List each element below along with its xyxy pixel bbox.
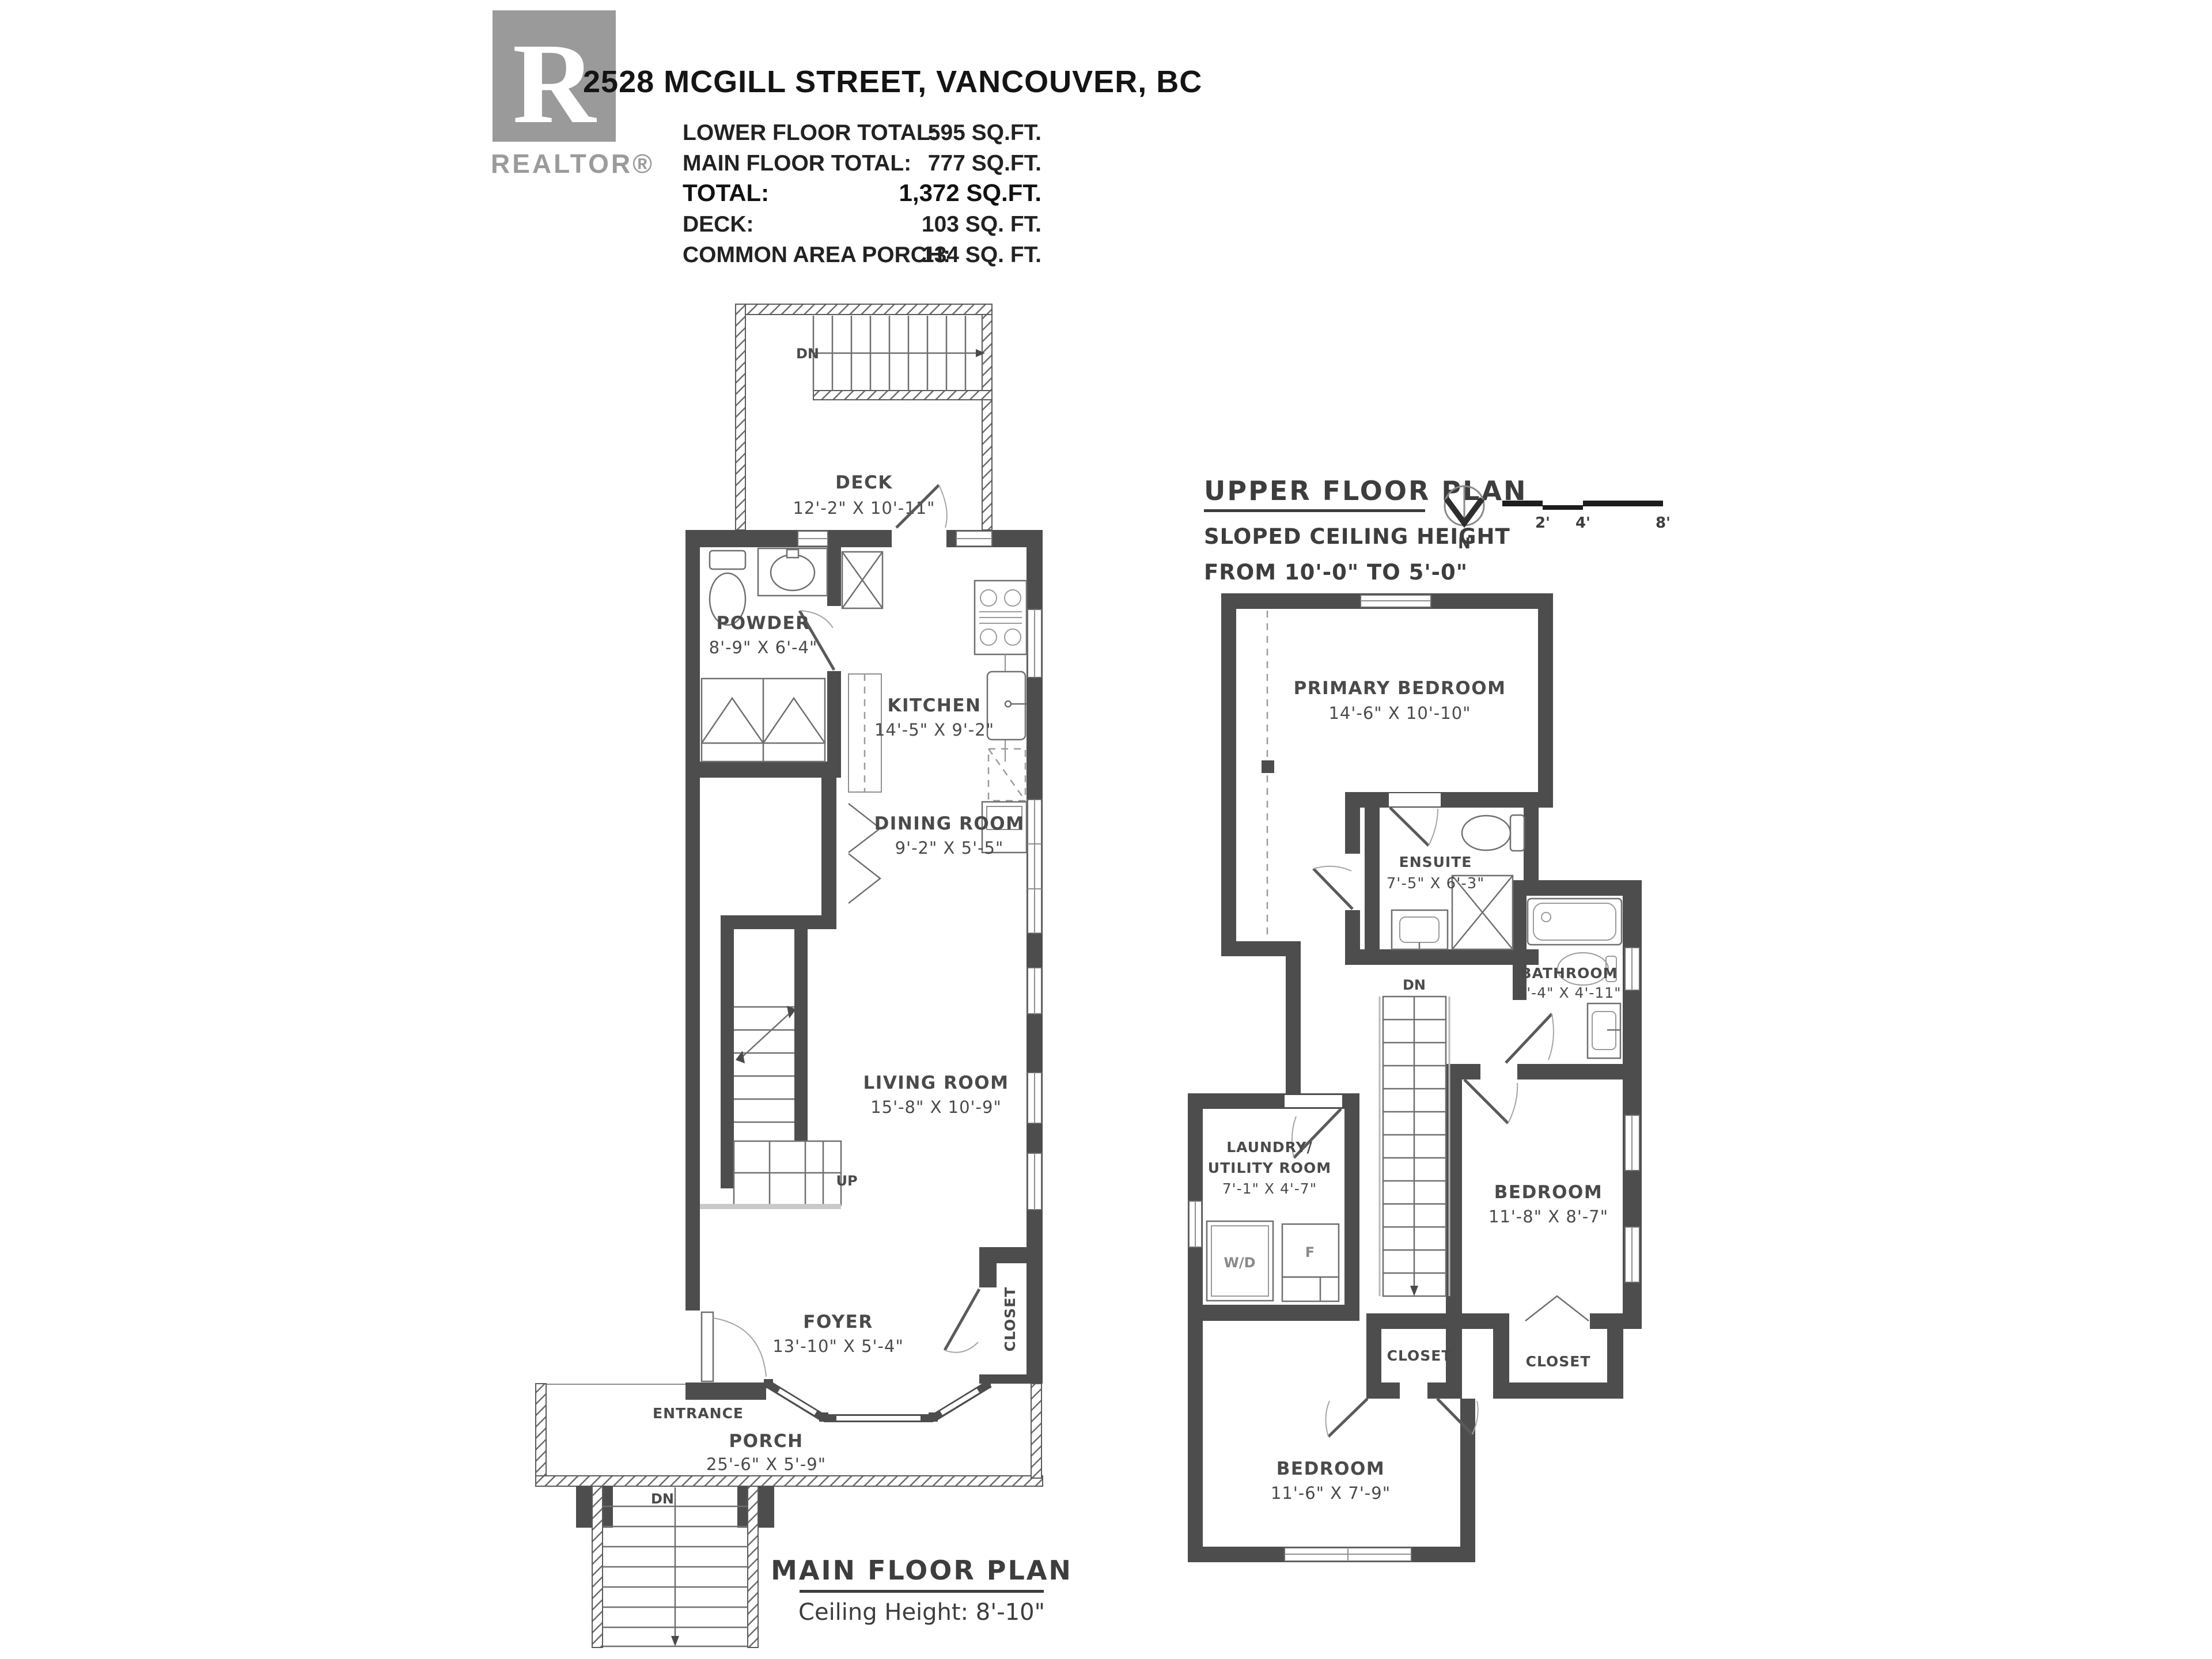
wall-left-jog bbox=[1221, 941, 1301, 956]
wall-ensuite-left bbox=[1365, 808, 1380, 949]
wall-left-upper bbox=[1221, 593, 1236, 941]
sink-icon bbox=[1588, 1003, 1620, 1058]
upper-staircase: DN bbox=[1380, 977, 1449, 1296]
bathtub-icon bbox=[1528, 899, 1622, 945]
laundry-room: LAUNDRY/ UTILITY ROOM 7'-1" X 4'-7" W/D … bbox=[1207, 1095, 1342, 1301]
bay-window bbox=[764, 1379, 991, 1422]
room-dims-bedroom-bottom: 11'-6" X 7'-9" bbox=[1271, 1483, 1391, 1503]
room-dims-bathroom: 8'-4" X 4'-11" bbox=[1517, 984, 1621, 1001]
window bbox=[1361, 595, 1431, 607]
window bbox=[1028, 800, 1041, 933]
entrance-label: ENTRANCE bbox=[653, 1405, 744, 1422]
door-gap bbox=[1389, 793, 1441, 806]
wall-ensuite-right bbox=[1524, 808, 1539, 880]
closet-bifold-door bbox=[1525, 1296, 1589, 1321]
window bbox=[1625, 1227, 1639, 1282]
furnace-icon: F bbox=[1282, 1224, 1339, 1301]
door-gap bbox=[1285, 1095, 1342, 1107]
wall-mcloset-bottom-left bbox=[1366, 1382, 1400, 1399]
scale-label-8ft: 8' bbox=[1656, 514, 1671, 532]
stairs-dn-label: DN bbox=[1403, 977, 1426, 993]
foyer: FOYER 13'-10" X 5'-4" ENTRANCE CLOSET bbox=[653, 1287, 1018, 1422]
stat-label: MAIN FLOOR TOTAL: bbox=[683, 151, 911, 176]
room-dims-bedroom-right: 11'-8" X 8'-7" bbox=[1488, 1207, 1608, 1226]
door-leaf bbox=[702, 1312, 713, 1381]
steps-arrow bbox=[671, 1636, 679, 1646]
wall-stair-jog bbox=[721, 915, 836, 929]
dishwasher-icon bbox=[988, 749, 1025, 801]
window bbox=[956, 531, 992, 546]
title-underline bbox=[800, 1590, 1044, 1593]
stat-label: COMMON AREA PORCH: bbox=[683, 243, 950, 267]
sloped-ceiling-marker bbox=[1262, 760, 1274, 773]
stairs-direction-line bbox=[740, 1012, 791, 1059]
stat-label-total: TOTAL: bbox=[683, 179, 769, 206]
stairs-up-label: UP bbox=[836, 1173, 857, 1189]
door-arc bbox=[713, 1318, 766, 1377]
wall-bbedroom-left bbox=[1188, 1321, 1203, 1562]
deck: DN DECK 12'-2" X 10'-11" bbox=[736, 304, 992, 530]
closet-label: CLOSET bbox=[1002, 1287, 1018, 1352]
pantry-cabinet bbox=[849, 674, 881, 903]
ensuite-door bbox=[1389, 793, 1441, 846]
stairs-landing-strip bbox=[700, 1204, 841, 1209]
foyer-closet: CLOSET bbox=[945, 1287, 1018, 1353]
room-label-ensuite: ENSUITE bbox=[1399, 854, 1472, 870]
stat-value: 103 SQ. FT. bbox=[922, 212, 1041, 237]
washer-dryer-label: W/D bbox=[1224, 1255, 1255, 1271]
stat-value: 777 SQ.FT. bbox=[928, 151, 1041, 176]
wall-ensuite-bottom bbox=[1345, 949, 1539, 965]
deck-wall-right bbox=[982, 315, 992, 530]
door-arc bbox=[939, 485, 947, 528]
room-dims-primary: 14'-6" X 10'-10" bbox=[1328, 703, 1471, 723]
door-arc bbox=[1508, 1083, 1517, 1123]
ensuite: ENSUITE 7'-5" X 6'-3" bbox=[1387, 793, 1524, 949]
wall-left bbox=[685, 530, 700, 1310]
room-label-primary: PRIMARY BEDROOM bbox=[1294, 678, 1506, 699]
porch-wall-left bbox=[536, 1384, 546, 1486]
door-arc bbox=[1325, 1401, 1330, 1437]
room-dims-kitchen: 14'-5" X 9'-2" bbox=[874, 720, 994, 740]
window bbox=[1285, 1548, 1411, 1561]
room-label-bedroom-bottom: BEDROOM bbox=[1277, 1459, 1385, 1479]
door-leaf bbox=[1506, 1014, 1552, 1063]
bathroom-door bbox=[1506, 1014, 1554, 1063]
room-label-laundry-1: LAUNDRY/ bbox=[1226, 1139, 1313, 1156]
washer-dryer-icon: W/D bbox=[1207, 1221, 1273, 1301]
compass-n-label: N bbox=[1458, 535, 1471, 552]
room-label-porch: PORCH bbox=[729, 1431, 803, 1452]
primary-hall-door bbox=[1313, 866, 1353, 909]
room-dims-living: 15'-8" X 10'-9" bbox=[870, 1097, 1002, 1117]
wall-primary-bottom bbox=[1345, 792, 1538, 808]
door-leaf bbox=[1328, 1399, 1368, 1437]
room-dims-dining: 9'-2" X 5'-5" bbox=[895, 838, 1004, 858]
deck-door-gap bbox=[892, 529, 946, 548]
deck-wall-left bbox=[736, 304, 745, 530]
deck-stairs-bottom-rail bbox=[813, 391, 992, 400]
wall-powder-right-lower bbox=[827, 671, 841, 762]
fridge-icon bbox=[842, 552, 882, 608]
stat-label: DECK: bbox=[683, 212, 754, 237]
window bbox=[1028, 609, 1041, 677]
area-stats: LOWER FLOOR TOTAL: 595 SQ.FT. MAIN FLOOR… bbox=[683, 120, 1041, 267]
door-leaf bbox=[1464, 1080, 1508, 1123]
deck-stairs-dn-label: DN bbox=[796, 346, 819, 362]
room-label-bedroom-right: BEDROOM bbox=[1494, 1182, 1603, 1203]
upper-floor-subtitle-2: FROM 10'-0" TO 5'-0" bbox=[1204, 560, 1468, 585]
door-arc bbox=[1429, 809, 1438, 846]
main-floor-subtitle: Ceiling Height: 8'-10" bbox=[798, 1599, 1045, 1626]
room-dims-deck: 12'-2" X 10'-11" bbox=[793, 498, 935, 518]
room-dims-porch: 25'-6" X 5'-9" bbox=[706, 1455, 826, 1474]
stairs-arrow-down bbox=[1410, 1286, 1418, 1296]
wall-right-upper bbox=[1538, 600, 1553, 808]
entrance-door bbox=[702, 1312, 766, 1381]
powder-wardrobe bbox=[702, 679, 825, 762]
bedroom-bottom: BEDROOM 11'-6" X 7'-9" bbox=[1271, 1399, 1391, 1503]
sink-icon bbox=[1392, 910, 1448, 949]
steps-dn-label: DN bbox=[651, 1491, 674, 1507]
porch-wall-right bbox=[1031, 1384, 1041, 1478]
deck-stairs bbox=[813, 316, 992, 400]
stove-icon bbox=[975, 581, 1027, 654]
wall-bedroom-top-left bbox=[1446, 1064, 1480, 1080]
room-label-foyer: FOYER bbox=[803, 1312, 873, 1332]
sink-icon bbox=[758, 548, 827, 596]
room-label-bathroom: BATHROOM bbox=[1520, 965, 1618, 982]
wall-closet-left-chunk bbox=[979, 1247, 997, 1287]
main-floor-title-block: MAIN FLOOR PLAN Ceiling Height: 8'-10" bbox=[771, 1555, 1073, 1626]
window bbox=[1625, 948, 1639, 990]
wall-bathroom-top bbox=[1513, 880, 1642, 896]
scale-label-4ft: 4' bbox=[1575, 514, 1590, 532]
room-label-kitchen: KITCHEN bbox=[887, 695, 981, 716]
realtor-logo-brand: REALTOR® bbox=[491, 149, 654, 179]
wall-laundry-right bbox=[1344, 1109, 1359, 1321]
room-label-dining: DINING ROOM bbox=[874, 813, 1025, 834]
door-arc bbox=[1313, 866, 1351, 871]
room-label-deck: DECK bbox=[835, 472, 893, 493]
room-label-powder: POWDER bbox=[716, 613, 810, 634]
wall-bathroom-bottom bbox=[1517, 1064, 1642, 1080]
closet-label: CLOSET bbox=[1526, 1353, 1591, 1370]
wall-stair-left bbox=[721, 929, 734, 1188]
window bbox=[941, 1391, 978, 1413]
room-label-laundry-2: UTILITY ROOM bbox=[1208, 1160, 1331, 1176]
front-steps: DN bbox=[592, 1486, 758, 1647]
main-floor-title: MAIN FLOOR PLAN bbox=[771, 1555, 1073, 1586]
door-leaf bbox=[945, 1289, 979, 1350]
wall-stair-right bbox=[794, 927, 808, 1141]
wall-hall-stub-lower bbox=[1345, 910, 1360, 949]
wall-rcloset-bottom bbox=[1493, 1382, 1623, 1399]
floorplan-page: R REALTOR® 2528 MCGILL STREET, VANCOUVER… bbox=[0, 0, 2212, 1659]
room-dims-laundry: 7'-1" X 4'-7" bbox=[1222, 1180, 1317, 1197]
scale-label-2ft: 2' bbox=[1535, 514, 1550, 532]
room-dims-ensuite: 7'-5" X 6'-3" bbox=[1387, 875, 1485, 892]
floorplan-drawing: R REALTOR® 2528 MCGILL STREET, VANCOUVER… bbox=[0, 0, 2212, 1659]
steps-rail-right bbox=[748, 1486, 758, 1647]
steps-rail-left bbox=[592, 1486, 603, 1647]
powder-room: POWDER 8'-9" X 6'-4" bbox=[702, 548, 834, 762]
kitchen-sink-icon bbox=[987, 654, 1027, 762]
stat-value: 595 SQ.FT. bbox=[928, 120, 1041, 145]
door-leaf bbox=[1313, 869, 1353, 909]
stat-label: LOWER FLOOR TOTAL: bbox=[683, 120, 938, 145]
door-leaf bbox=[1390, 808, 1429, 846]
scale-bar: 2' 4' 8' bbox=[1502, 501, 1671, 532]
wall-stair-right-upper bbox=[821, 778, 836, 916]
main-floor-walls bbox=[685, 530, 1043, 1400]
room-dims-powder: 8'-9" X 6'-4" bbox=[709, 638, 818, 657]
window bbox=[798, 531, 828, 546]
window bbox=[1028, 1073, 1041, 1123]
stat-value: 134 SQ. FT. bbox=[922, 243, 1041, 267]
stat-value-total: 1,372 SQ.FT. bbox=[899, 179, 1041, 206]
toilet-icon bbox=[1462, 815, 1524, 851]
upper-floor-plan: UPPER FLOOR PLAN SLOPED CEILING HEIGHT F… bbox=[1188, 475, 1671, 1562]
window bbox=[1189, 1201, 1202, 1247]
bedroom-door bbox=[1464, 1080, 1517, 1123]
window bbox=[779, 1391, 816, 1413]
header: R REALTOR® 2528 MCGILL STREET, VANCOUVER… bbox=[491, 10, 1202, 267]
title-underline bbox=[1204, 509, 1425, 512]
porch-wall-bottom bbox=[536, 1476, 1043, 1486]
closet-label: CLOSET bbox=[1387, 1347, 1452, 1364]
deck-wall-top bbox=[736, 304, 992, 315]
wall-entrance-stub bbox=[685, 1382, 766, 1400]
bedroom-door bbox=[1325, 1399, 1368, 1437]
room-dims-foyer: 13'-10" X 5'-4" bbox=[772, 1336, 904, 1356]
wall-powder-bottom bbox=[685, 762, 841, 778]
wall-powder-right-upper bbox=[827, 547, 841, 606]
window bbox=[1028, 1153, 1041, 1210]
page-title: 2528 MCGILL STREET, VANCOUVER, BC bbox=[583, 65, 1202, 99]
room-label-living: LIVING ROOM bbox=[863, 1073, 1009, 1093]
wall-left-mid bbox=[1286, 956, 1301, 1093]
main-floor-plan: DN DECK 12'-2" X 10'-11" bbox=[536, 304, 1073, 1647]
wall-hall-stub-upper bbox=[1345, 808, 1360, 854]
door-arc bbox=[1548, 1014, 1554, 1060]
furnace-label: F bbox=[1305, 1244, 1315, 1260]
closet-right: CLOSET bbox=[1525, 1296, 1590, 1370]
wall-mcloset-bottom-right bbox=[1427, 1382, 1462, 1399]
window bbox=[1625, 1115, 1639, 1171]
wall-laundry-bottom bbox=[1188, 1305, 1359, 1321]
window bbox=[1028, 968, 1041, 1014]
